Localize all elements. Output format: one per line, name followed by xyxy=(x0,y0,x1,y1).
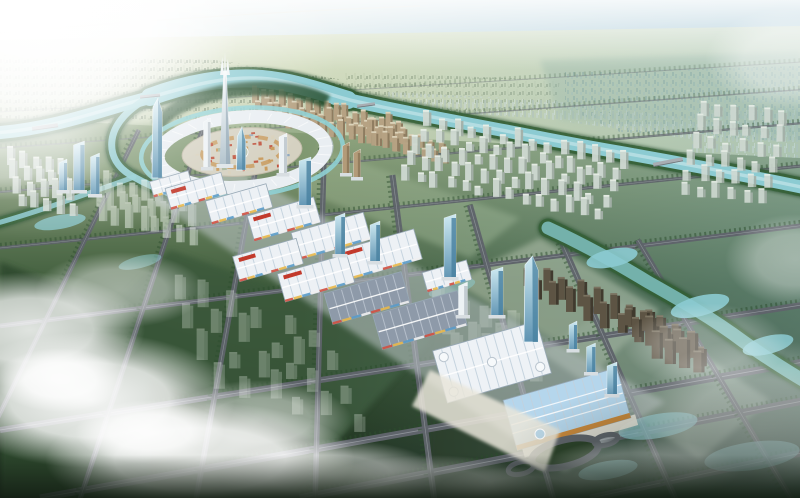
tower-side xyxy=(376,134,378,146)
tower xyxy=(515,129,521,147)
tower-roof xyxy=(730,105,736,107)
tower-side xyxy=(574,325,577,352)
tower xyxy=(593,175,599,189)
tower-roof xyxy=(522,144,528,146)
tower-roof xyxy=(773,145,779,147)
tower-side xyxy=(358,153,361,180)
tower xyxy=(176,226,182,242)
tower-roof xyxy=(361,110,366,112)
tower-side xyxy=(435,174,437,188)
tower-side xyxy=(495,157,497,170)
tower-side xyxy=(513,144,515,157)
tower-roof xyxy=(541,178,547,180)
tower-side xyxy=(428,159,430,171)
tower xyxy=(465,163,471,180)
tower-roof xyxy=(546,160,552,162)
tower-side xyxy=(219,311,222,333)
tower-roof xyxy=(606,150,612,152)
tower-roof xyxy=(594,287,601,289)
tower xyxy=(349,125,354,139)
tower-side xyxy=(317,333,320,347)
tower-side xyxy=(688,172,690,180)
tower-side xyxy=(528,146,530,162)
tower-roof xyxy=(550,199,556,201)
tower-side xyxy=(302,339,305,364)
tower-roof xyxy=(341,103,346,105)
tower-roof xyxy=(574,181,580,183)
tower-side xyxy=(609,197,611,207)
tower xyxy=(697,115,703,130)
tower-roof xyxy=(211,309,219,311)
tower-roof xyxy=(744,190,750,192)
tower-side xyxy=(693,152,695,165)
tower-roof xyxy=(536,194,542,196)
tower-roof xyxy=(407,150,413,152)
tower-roof xyxy=(459,148,465,150)
tower-roof xyxy=(396,121,401,123)
tower-roof xyxy=(418,172,424,174)
tower-roof xyxy=(337,115,342,117)
tower-side xyxy=(206,282,209,307)
tower-roof xyxy=(176,225,182,227)
tower xyxy=(367,119,372,135)
tower-roof xyxy=(423,110,429,112)
tower-side xyxy=(770,176,772,187)
tower-side xyxy=(397,138,399,151)
tower-podium xyxy=(333,254,348,258)
tower xyxy=(468,128,474,138)
tower-side xyxy=(746,141,748,152)
tower-roof xyxy=(742,125,748,127)
tower-side xyxy=(407,167,409,181)
tower-roof xyxy=(354,414,362,416)
tower-roof xyxy=(740,138,746,140)
tower-roof xyxy=(379,117,384,119)
tower-side xyxy=(388,133,390,147)
tower-side xyxy=(547,180,549,195)
tower-podium xyxy=(297,205,314,209)
tower xyxy=(730,123,736,136)
tower xyxy=(769,158,775,172)
tower-roof xyxy=(603,195,609,197)
tower xyxy=(294,338,302,364)
tower-roof xyxy=(358,125,363,127)
tower-roof xyxy=(714,104,720,106)
tower-side xyxy=(736,107,738,120)
tower xyxy=(383,132,388,147)
tower-side xyxy=(499,147,501,155)
tower-side xyxy=(464,286,467,318)
tower-roof xyxy=(682,170,688,172)
tower-roof xyxy=(390,122,395,124)
tower-side xyxy=(169,219,171,238)
tower-roof xyxy=(403,137,408,139)
tower-side xyxy=(727,153,729,167)
tower xyxy=(452,163,458,176)
tower-side xyxy=(779,147,781,157)
tower-side xyxy=(442,132,444,143)
tower-side xyxy=(750,192,752,202)
tower-roof xyxy=(435,155,441,157)
tower-side xyxy=(441,158,443,171)
tower-roof xyxy=(713,118,719,120)
tower xyxy=(758,190,764,204)
tower-side xyxy=(349,388,352,404)
tower-side xyxy=(502,172,504,184)
tower xyxy=(625,309,632,325)
tower-side xyxy=(376,225,380,264)
tower xyxy=(713,120,719,134)
tower xyxy=(259,352,267,377)
tower xyxy=(701,166,707,181)
tower xyxy=(435,157,441,171)
tower-roof xyxy=(475,154,481,156)
tower-side xyxy=(474,129,476,138)
tower-side xyxy=(499,181,501,197)
tower-roof xyxy=(294,337,302,339)
tower-roof xyxy=(525,172,531,174)
tower-roof xyxy=(697,114,703,116)
tower-roof xyxy=(504,158,510,160)
tower xyxy=(610,295,617,319)
tower-podium xyxy=(340,173,352,177)
tower xyxy=(555,157,561,168)
tower xyxy=(439,120,445,130)
tower-roof xyxy=(441,147,447,149)
tower-roof xyxy=(507,310,516,312)
tower-side xyxy=(775,159,777,172)
tower xyxy=(500,136,506,145)
tower xyxy=(613,169,619,179)
tower-roof xyxy=(489,154,495,156)
tower-side xyxy=(743,160,745,171)
landmark-glass xyxy=(368,221,383,265)
tower-side xyxy=(489,127,491,142)
tower-roof xyxy=(307,368,315,370)
tower-side xyxy=(542,196,544,206)
tower xyxy=(309,332,317,347)
tower-side xyxy=(599,176,601,189)
tower-side xyxy=(703,116,705,130)
tower xyxy=(740,140,746,152)
tower-podium xyxy=(368,261,383,265)
tower-side xyxy=(539,280,542,299)
tower-side xyxy=(247,315,250,342)
tower-side xyxy=(531,174,533,189)
tower xyxy=(592,146,598,162)
tower-side xyxy=(182,227,184,242)
tower xyxy=(682,183,688,195)
tower-roof xyxy=(518,157,524,159)
tower-roof xyxy=(422,156,428,158)
tower-roof xyxy=(758,142,764,144)
tower xyxy=(749,106,755,120)
tower-side xyxy=(335,353,338,370)
tower-roof xyxy=(583,295,590,297)
tower-side xyxy=(728,145,730,152)
tower xyxy=(518,158,524,173)
tower-roof xyxy=(716,170,722,172)
tower-side xyxy=(572,197,574,212)
tower-roof xyxy=(682,182,688,184)
landmark-glass xyxy=(333,213,348,258)
tower-roof xyxy=(378,125,383,127)
tower-roof xyxy=(727,187,733,189)
tower xyxy=(190,229,196,246)
tower-roof xyxy=(286,363,294,365)
tower-side xyxy=(518,179,520,188)
tower-roof xyxy=(610,179,616,181)
tower-side xyxy=(583,169,585,184)
tower xyxy=(731,171,737,184)
tower xyxy=(778,112,784,126)
tower-roof xyxy=(353,122,358,124)
tower xyxy=(229,353,237,368)
tower-roof xyxy=(561,174,567,176)
tower-side xyxy=(427,132,429,142)
tower xyxy=(618,315,625,333)
tower xyxy=(748,175,754,187)
tower-roof xyxy=(392,136,397,138)
tower-roof xyxy=(429,171,435,173)
tower-side xyxy=(294,365,297,379)
tower-side xyxy=(567,142,569,154)
tower-roof xyxy=(577,141,583,143)
tower xyxy=(536,195,542,206)
tower-roof xyxy=(613,168,619,170)
tower-roof xyxy=(400,127,405,129)
tower-roof xyxy=(730,121,736,123)
tower-side xyxy=(699,134,701,148)
tower-roof xyxy=(229,352,237,354)
tower-side xyxy=(445,121,447,130)
tower-side xyxy=(458,164,460,176)
tower-side xyxy=(234,293,237,317)
tower xyxy=(693,133,699,148)
tower-roof xyxy=(693,132,699,134)
tower-roof xyxy=(737,157,743,159)
crystal-shade xyxy=(532,256,538,342)
tower xyxy=(600,303,607,328)
tower xyxy=(418,174,424,182)
tower-roof xyxy=(600,301,607,303)
tower-side xyxy=(454,179,456,188)
tower-side xyxy=(737,172,739,184)
scene-canvas xyxy=(0,0,800,498)
tower-roof xyxy=(455,119,461,121)
tower-side xyxy=(307,161,312,208)
tower-roof xyxy=(318,114,323,116)
tower-roof xyxy=(532,164,538,166)
tower-roof xyxy=(748,174,754,176)
tower-roof xyxy=(452,162,458,164)
tower xyxy=(479,138,485,154)
tower-side xyxy=(770,110,772,123)
tower xyxy=(737,159,743,171)
tower-roof xyxy=(386,112,391,114)
tower xyxy=(714,106,720,117)
tower xyxy=(226,292,234,317)
tower xyxy=(474,187,480,195)
tower-side xyxy=(452,218,457,280)
tower xyxy=(758,144,764,157)
tower xyxy=(448,178,454,188)
tower-roof xyxy=(592,144,598,146)
tower-side xyxy=(757,164,759,173)
tower-roof xyxy=(226,290,234,292)
tower-podium xyxy=(351,177,363,181)
tower-side xyxy=(619,170,621,179)
tower xyxy=(371,133,376,146)
tower-side xyxy=(703,189,705,197)
tower-side xyxy=(552,163,554,179)
tower-side xyxy=(343,122,345,140)
tower-roof xyxy=(515,127,521,129)
tower xyxy=(398,133,403,143)
tower-roof xyxy=(465,162,471,164)
tower-podium xyxy=(442,277,459,281)
tower-side xyxy=(341,217,345,257)
tower-side xyxy=(196,230,198,246)
tower xyxy=(558,181,564,195)
tower-podium xyxy=(489,315,506,319)
tower-roof xyxy=(271,369,279,371)
tower-side xyxy=(511,190,513,199)
tower xyxy=(401,166,407,181)
tower-roof xyxy=(758,188,764,190)
tower xyxy=(707,138,713,149)
tower-side xyxy=(733,189,735,199)
tower xyxy=(574,183,580,201)
tower-side xyxy=(258,309,261,328)
tower-side xyxy=(601,211,603,219)
tower-roof xyxy=(567,156,573,158)
tower-roof xyxy=(523,194,529,196)
tower-side xyxy=(764,145,766,157)
tower-roof xyxy=(566,286,573,288)
tower xyxy=(285,317,293,334)
landmark-crystal xyxy=(524,256,538,342)
tower-side xyxy=(573,289,576,312)
tower-side xyxy=(783,127,785,142)
tower-side xyxy=(556,283,559,304)
tower xyxy=(422,158,428,171)
tower xyxy=(764,175,770,187)
tower xyxy=(429,173,435,188)
tower-roof xyxy=(507,142,513,144)
tower-roof xyxy=(383,131,388,133)
tower-roof xyxy=(367,118,372,120)
tower-roof xyxy=(722,143,728,145)
tower-side xyxy=(413,153,415,165)
tower-roof xyxy=(250,307,258,309)
tower-roof xyxy=(479,136,485,138)
tower-side xyxy=(764,191,766,204)
tower xyxy=(586,167,592,175)
tower xyxy=(558,278,565,299)
tower xyxy=(566,288,573,312)
tower-roof xyxy=(761,126,767,128)
tower-roof xyxy=(586,165,592,167)
tower-roof xyxy=(327,351,335,353)
tower-side xyxy=(293,318,296,334)
tower-podium xyxy=(584,372,598,376)
tower xyxy=(606,151,612,162)
tower-roof xyxy=(481,169,487,171)
tower-side xyxy=(688,184,690,195)
tower xyxy=(744,191,750,202)
tower-side xyxy=(707,103,709,116)
tower-roof xyxy=(493,178,499,180)
tower xyxy=(603,196,609,207)
tower-roof xyxy=(352,111,357,113)
tower-roof xyxy=(595,209,601,211)
tower-side xyxy=(556,201,558,211)
tower-roof xyxy=(626,305,633,307)
tower xyxy=(463,182,469,191)
tower-side xyxy=(748,127,750,135)
tower-side xyxy=(598,147,600,162)
tower-side xyxy=(722,172,724,183)
tower xyxy=(727,188,733,199)
tower-side xyxy=(538,166,540,180)
tower-roof xyxy=(711,181,717,183)
tower xyxy=(459,149,465,165)
tower-side xyxy=(347,146,350,176)
tower-roof xyxy=(620,150,626,152)
tower-roof xyxy=(558,277,565,279)
tower-roof xyxy=(285,315,293,317)
tower xyxy=(392,137,397,151)
tower-roof xyxy=(412,135,418,137)
tower-podium xyxy=(277,173,290,177)
tower-roof xyxy=(581,197,587,199)
tower xyxy=(211,310,219,333)
tower-roof xyxy=(707,136,713,138)
tower xyxy=(697,188,703,197)
tower xyxy=(742,126,748,135)
tower-side xyxy=(549,145,551,154)
tower-side xyxy=(717,183,719,197)
tower xyxy=(773,146,779,157)
tower-roof xyxy=(398,131,403,133)
tower-side xyxy=(707,167,709,181)
tower xyxy=(540,154,546,164)
tower-roof xyxy=(751,161,757,163)
tower-roof xyxy=(483,125,489,127)
tower-side xyxy=(499,271,504,318)
tower xyxy=(507,143,513,157)
tower xyxy=(481,170,487,183)
tower-side xyxy=(607,304,610,328)
tower-side xyxy=(510,160,512,173)
tower-side xyxy=(626,152,628,169)
tower-side xyxy=(719,121,721,134)
tower xyxy=(761,128,767,138)
tower-roof xyxy=(388,126,393,128)
tower-roof xyxy=(625,308,632,310)
tower-side xyxy=(591,195,593,204)
tower-roof xyxy=(426,144,432,146)
tower xyxy=(583,296,590,321)
tower-roof xyxy=(327,107,332,109)
tower-roof xyxy=(543,142,549,144)
tower xyxy=(512,178,518,188)
tower-side xyxy=(237,354,240,368)
tower-roof xyxy=(474,186,480,188)
tower-side xyxy=(754,176,756,187)
tower xyxy=(751,163,757,173)
